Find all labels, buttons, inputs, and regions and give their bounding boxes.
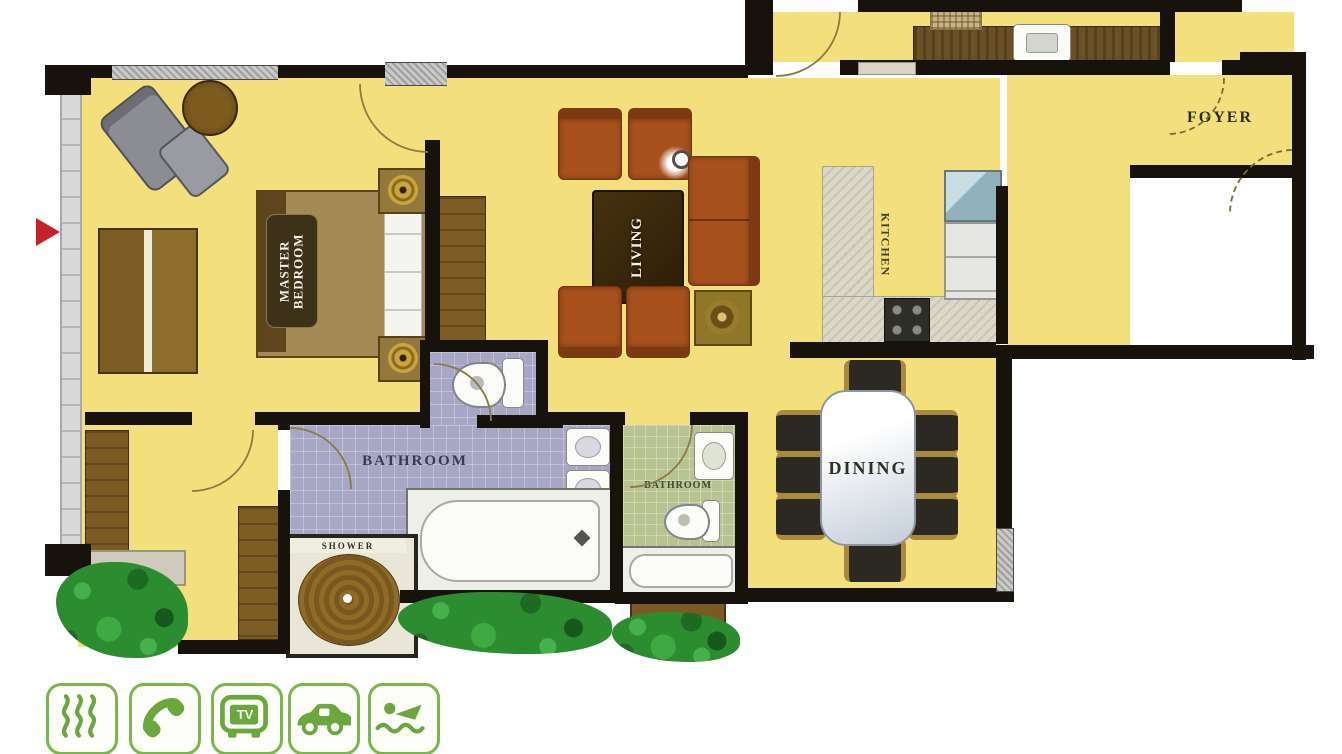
wall xyxy=(615,592,748,604)
room-label-shower: SHOWER xyxy=(322,541,375,551)
dining-table: DINING xyxy=(820,390,916,546)
steam-sauna-icon xyxy=(46,683,118,754)
wall xyxy=(178,640,288,654)
telephone-icon xyxy=(129,683,201,754)
wall xyxy=(740,588,1014,602)
shower-stall: SHOWER xyxy=(286,534,418,658)
kitchen-appliance-wall xyxy=(996,186,1008,344)
wall xyxy=(1130,165,1294,178)
room-label-master-bathroom: BATHROOM xyxy=(362,453,468,470)
cooktop xyxy=(884,298,930,342)
wall xyxy=(85,412,192,425)
wall xyxy=(1160,0,1175,62)
refrigerator xyxy=(944,222,1002,300)
wall xyxy=(45,65,91,95)
wardrobe-hall-right xyxy=(238,506,282,640)
wall xyxy=(548,412,625,425)
balcony-window-strip xyxy=(60,92,82,546)
side-table xyxy=(694,290,752,346)
plant-pot-icon xyxy=(705,300,739,334)
floor-foyer-nook xyxy=(1007,167,1130,345)
room-label-foyer: FOYER xyxy=(1187,109,1253,127)
window xyxy=(996,528,1014,592)
door-threshold xyxy=(858,62,916,75)
wall xyxy=(610,420,623,602)
wall xyxy=(690,412,748,425)
dining-chair xyxy=(776,452,826,498)
wall xyxy=(428,340,548,352)
wall xyxy=(745,0,773,75)
dining-chair xyxy=(776,494,826,540)
bathroom-sink xyxy=(694,432,734,480)
bed-mattress xyxy=(384,196,422,350)
wall xyxy=(425,140,440,342)
wall xyxy=(1292,60,1306,360)
master-bedroom-label-plate: MASTER BEDROOM xyxy=(266,214,318,328)
plants xyxy=(398,592,612,654)
entry-arrow-icon xyxy=(36,218,60,246)
bathtub-master xyxy=(406,488,612,594)
kitchen-label-holder: KITCHEN xyxy=(872,198,898,290)
room-label-common-bathroom: BATHROOM xyxy=(644,480,712,491)
master-bathroom-label-holder: BATHROOM xyxy=(330,450,500,472)
room-label-dining: DINING xyxy=(828,458,907,479)
armchair xyxy=(626,286,690,358)
wall xyxy=(858,0,1242,12)
window xyxy=(385,62,447,86)
wall xyxy=(278,412,290,430)
wardrobe-hall-left xyxy=(85,430,129,554)
wall xyxy=(278,490,290,652)
wall xyxy=(790,342,996,358)
round-side-table xyxy=(182,80,238,136)
flower-pot-icon xyxy=(388,343,418,373)
plants xyxy=(612,612,740,662)
utility-sink xyxy=(1013,24,1071,62)
tv-icon-label: TV xyxy=(230,704,260,725)
toilet-bowl xyxy=(664,504,710,540)
bathroom-sink xyxy=(566,428,610,466)
common-bathroom-label-holder: BATHROOM xyxy=(621,478,735,492)
dresser xyxy=(98,228,198,374)
room-label-kitchen: KITCHEN xyxy=(878,212,893,276)
flower-pot-icon xyxy=(388,175,418,205)
shower-label-holder: SHOWER xyxy=(290,538,406,553)
wall xyxy=(1222,60,1294,75)
nightstand-top xyxy=(378,168,430,214)
swimming-pool-icon xyxy=(368,683,440,754)
window xyxy=(112,65,278,80)
wall xyxy=(996,345,1314,359)
armchair xyxy=(558,286,622,358)
dining-chair xyxy=(776,410,826,456)
tv-icon: TV xyxy=(211,683,283,754)
sofa xyxy=(688,156,760,286)
armchair xyxy=(558,108,622,180)
kitchen-sink xyxy=(944,170,1002,222)
wall xyxy=(996,358,1012,530)
floor-plan-canvas: MASTER BEDROOM LIVING KITCHEN xyxy=(0,0,1342,754)
car-parking-icon xyxy=(288,683,360,754)
room-label-living: LIVING xyxy=(629,216,646,277)
wall xyxy=(735,420,748,602)
room-label-master-line2: BEDROOM xyxy=(292,233,306,309)
toilet-bowl xyxy=(452,362,506,408)
bathtub-common xyxy=(620,546,740,596)
wardrobe-bedroom xyxy=(432,196,486,342)
wall xyxy=(420,340,430,428)
foyer-label-holder: FOYER xyxy=(1160,106,1280,130)
